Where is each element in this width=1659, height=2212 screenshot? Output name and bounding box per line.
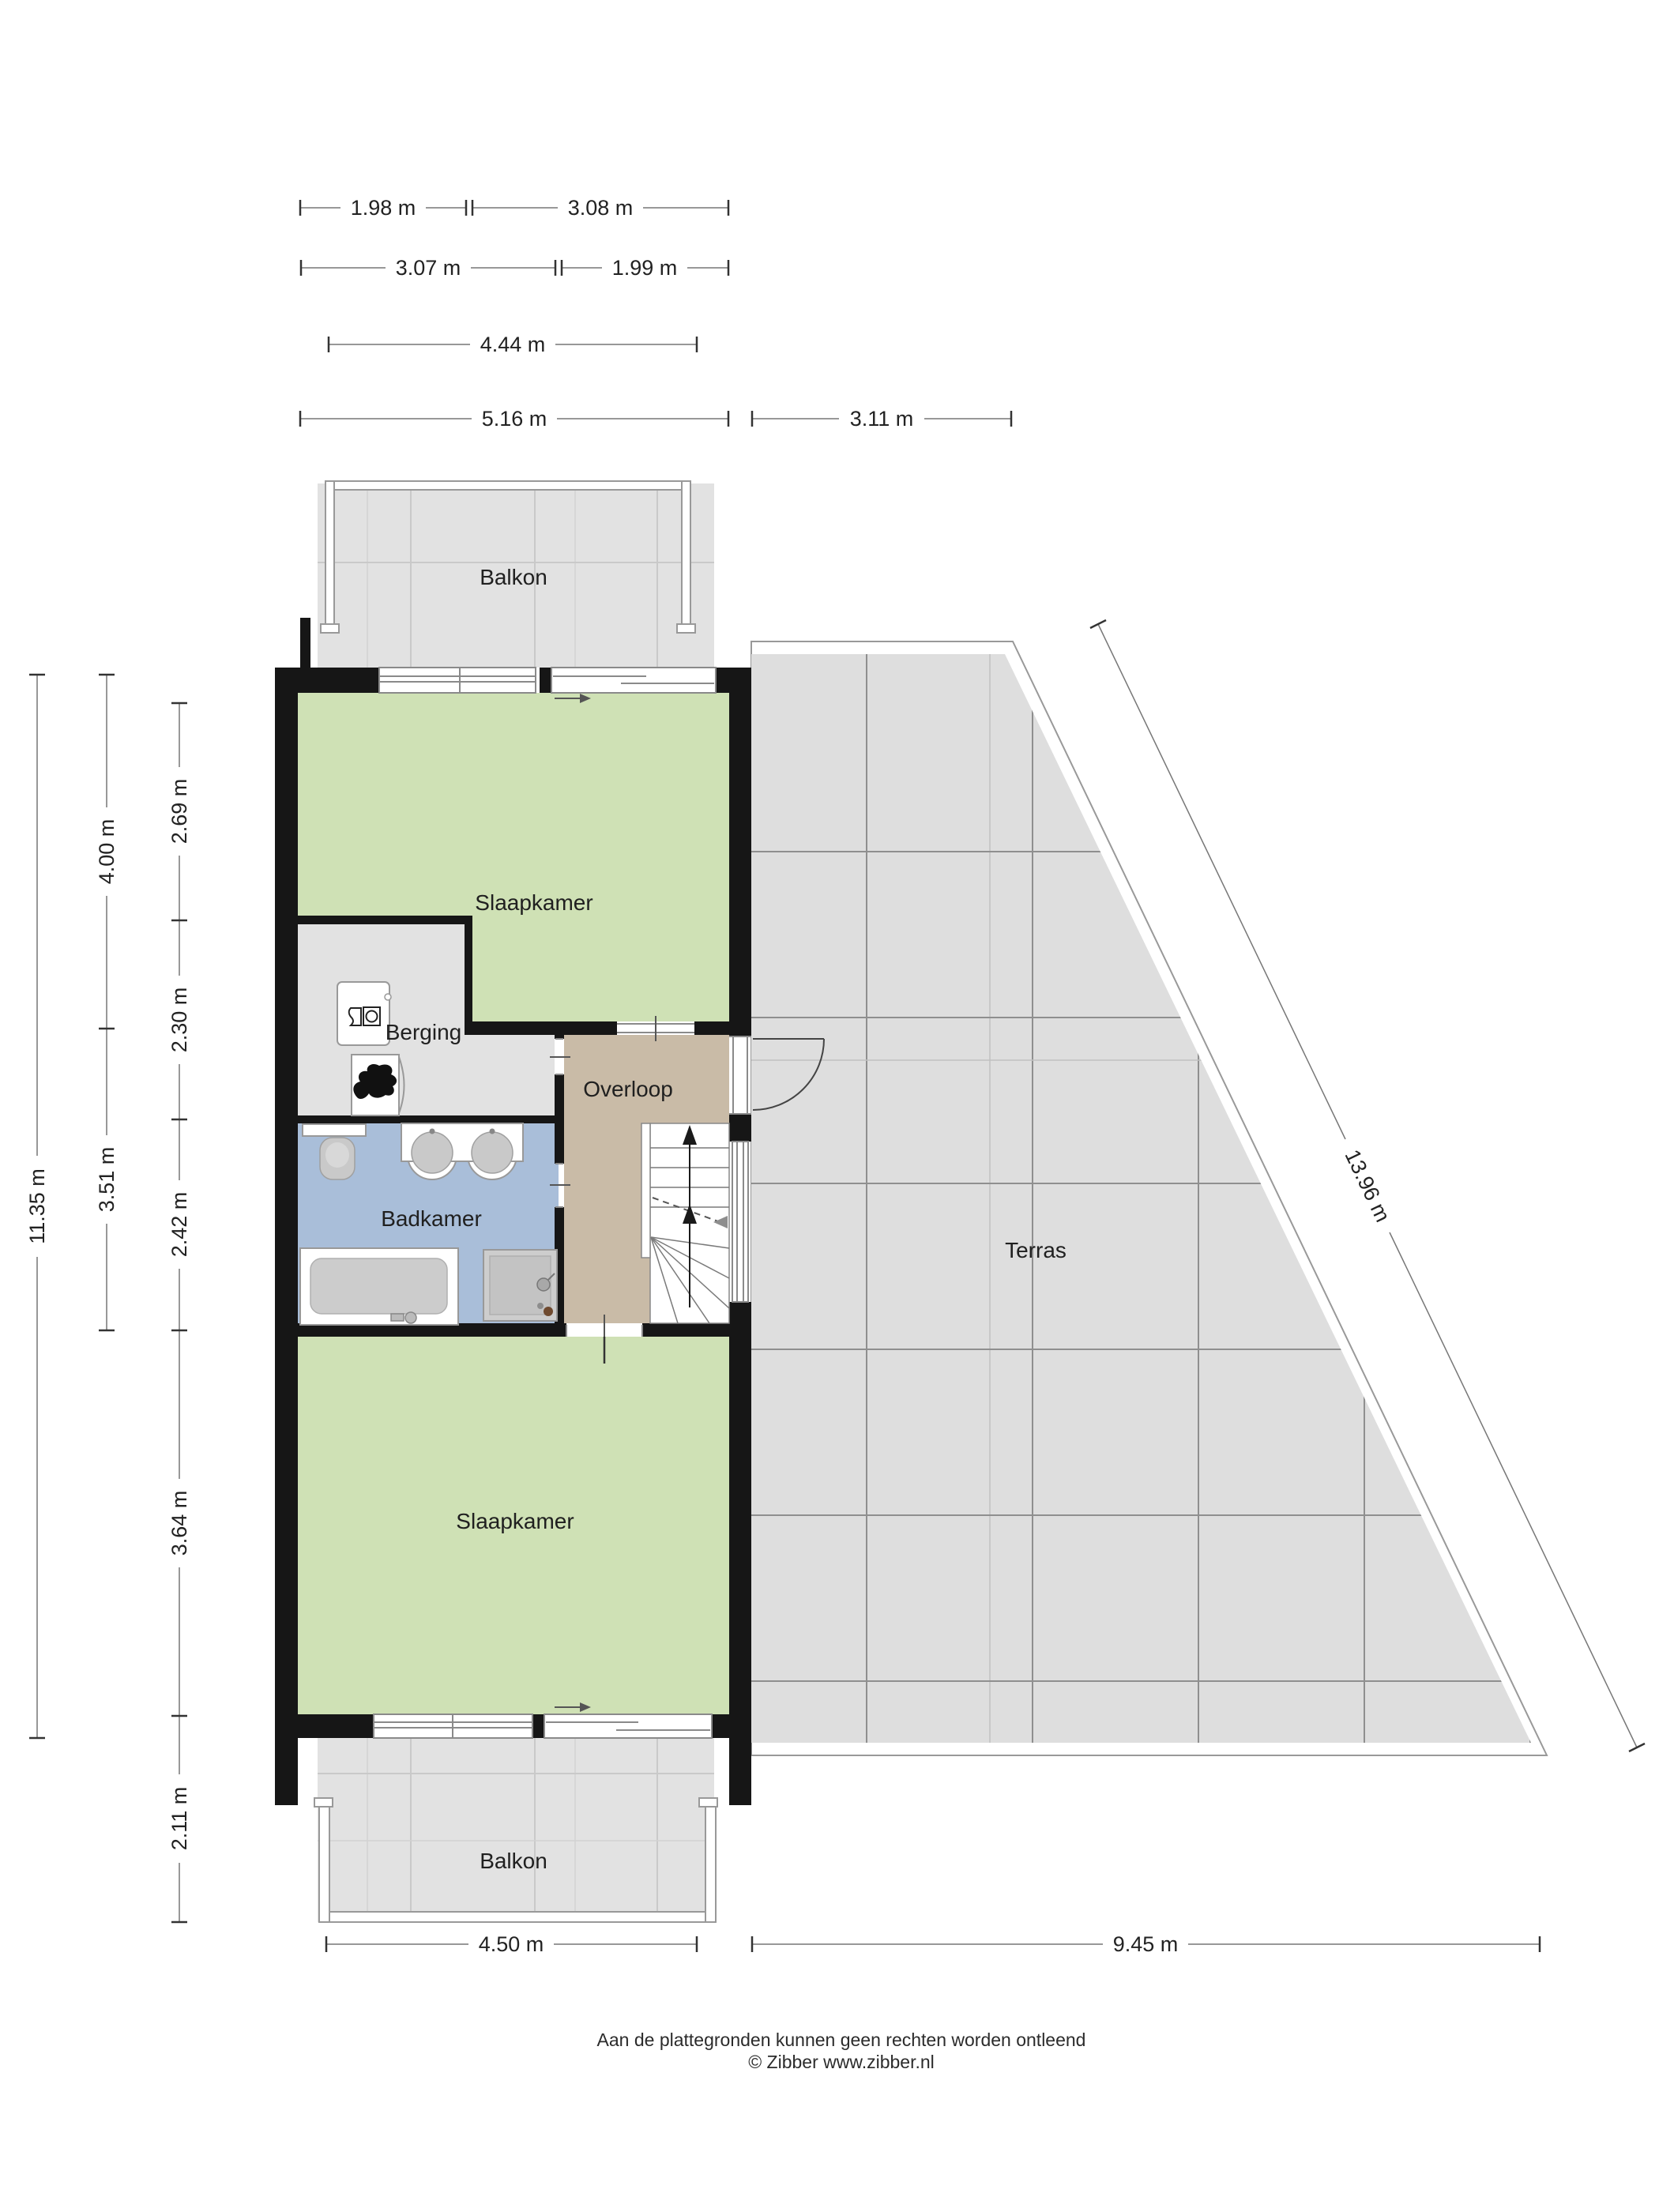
footer: Aan de plattegronden kunnen geen rechten… xyxy=(597,2030,1086,2072)
terrace-label: Terras xyxy=(1005,1238,1066,1262)
balcony-bottom-label: Balkon xyxy=(480,1849,547,1873)
balcony-top-rail-right xyxy=(682,481,690,627)
window-bottom-1 xyxy=(374,1714,532,1738)
balcony-top-rail-left xyxy=(325,481,334,627)
dim-row-4: 5.16 m 3.11 m xyxy=(300,407,1011,431)
dim-label: 13.96 m xyxy=(1340,1146,1394,1226)
dim-label: 3.11 m xyxy=(850,407,914,431)
overloop-label: Overloop xyxy=(583,1077,673,1101)
dim-label: 3.64 m xyxy=(167,1491,191,1556)
dim-label: 11.35 m xyxy=(25,1168,49,1244)
balcony-rail-cap xyxy=(699,1798,717,1807)
dimensions-bottom: 4.50 m 9.45 m xyxy=(326,1932,1540,1956)
terrace-area: Terras xyxy=(751,641,1547,1755)
dim-label: 4.50 m xyxy=(479,1932,544,1956)
window-top-1 xyxy=(379,668,536,693)
wall-right-corner xyxy=(729,1018,751,1036)
badkamer-label: Badkamer xyxy=(381,1206,482,1231)
slaapkamer-top-label: Slaapkamer xyxy=(475,890,592,915)
wall-bottom-mullion xyxy=(532,1714,544,1738)
balcony-bottom-rail xyxy=(319,1912,716,1922)
wall-right-mid xyxy=(729,1114,751,1142)
wall-slaapkamer-overloop-a xyxy=(465,1021,617,1035)
dim-label: 9.45 m xyxy=(1113,1932,1179,1956)
dim-label: 2.42 m xyxy=(167,1192,191,1258)
dimensions-top: 1.98 m 3.08 m 3.07 m 1.99 m 4.44 m 5.16 … xyxy=(300,196,1011,431)
dim-label: 2.69 m xyxy=(167,779,191,845)
wall-interior-bottom-b xyxy=(642,1323,729,1337)
stairs xyxy=(641,1123,729,1323)
dim-label: 4.44 m xyxy=(480,333,546,356)
balcony-rail-cap xyxy=(314,1798,333,1807)
shower-icon xyxy=(483,1250,557,1321)
dim-row-1: 1.98 m 3.08 m xyxy=(300,196,728,220)
floorplan-svg: Terras Balkon xyxy=(0,0,1659,2212)
dim-row-3: 4.44 m xyxy=(329,333,697,356)
floorplan-page: Terras Balkon xyxy=(0,0,1659,2212)
slaapkamer-bottom-label: Slaapkamer xyxy=(456,1509,574,1533)
bathtub-icon xyxy=(300,1248,458,1325)
dim-label: 5.16 m xyxy=(482,407,547,431)
stairs-banister xyxy=(641,1123,650,1258)
wall-right-upper xyxy=(729,668,751,1036)
balcony-bottom: Balkon xyxy=(314,1738,717,1922)
wall-slaapkamer-overloop-b xyxy=(694,1021,729,1035)
water-heater-icon xyxy=(352,1055,404,1115)
footer-copyright: © Zibber www.zibber.nl xyxy=(748,2052,935,2072)
wall-berging-vertical xyxy=(465,916,472,1035)
balcony-top-rail xyxy=(325,481,690,490)
balcony-rail-cap xyxy=(677,624,695,633)
dim-label: 3.51 m xyxy=(95,1147,118,1213)
dim-label: 2.30 m xyxy=(167,987,191,1053)
wall-slaapkamer-berging xyxy=(298,916,472,924)
balcony-bottom-rail-right xyxy=(705,1805,716,1922)
terrace-floor xyxy=(751,654,1531,1743)
dim-label: 3.07 m xyxy=(396,256,461,280)
wall-stub-bottom-right xyxy=(729,1738,751,1805)
wall-berging-badkamer xyxy=(298,1115,559,1123)
wall-bottom-right xyxy=(712,1714,751,1738)
wall-right-lower xyxy=(729,1302,751,1738)
dimensions-left: 11.35 m 4.00 m 3.51 m 2.69 m 2.30 m 2.42… xyxy=(25,675,191,1922)
berging-label: Berging xyxy=(386,1020,462,1044)
wall-bottom-left xyxy=(275,1714,374,1738)
dim-col-2: 4.00 m 3.51 m xyxy=(95,675,118,1330)
dim-row-2: 3.07 m 1.99 m xyxy=(301,256,728,280)
dim-label: 3.08 m xyxy=(568,196,634,220)
dim-col-3: 2.69 m 2.30 m 2.42 m 3.64 m 2.11 m xyxy=(167,703,191,1922)
balcony-top: Balkon xyxy=(318,481,714,668)
window-stairwell xyxy=(732,1142,748,1302)
dim-label: 1.99 m xyxy=(612,256,678,280)
washer-icon xyxy=(337,982,391,1045)
wall-stub-bottom-left xyxy=(275,1738,298,1805)
balcony-bottom-floor xyxy=(318,1738,714,1922)
wall-left xyxy=(275,668,298,1738)
wall-top-left xyxy=(275,668,379,693)
wall-balcony-stub-top xyxy=(300,618,310,668)
balcony-rail-cap xyxy=(321,624,339,633)
dim-label: 4.00 m xyxy=(95,819,118,885)
balcony-bottom-rail-left xyxy=(319,1805,329,1922)
dim-label: 2.11 m xyxy=(167,1787,191,1851)
dim-label: 1.98 m xyxy=(351,196,416,220)
dim-col-1: 11.35 m xyxy=(25,675,49,1738)
wall-top-mullion xyxy=(540,668,551,693)
footer-disclaimer: Aan de plattegronden kunnen geen rechten… xyxy=(597,2030,1086,2050)
balcony-top-label: Balkon xyxy=(480,565,547,589)
wall-overloop-left-b xyxy=(555,1074,564,1164)
